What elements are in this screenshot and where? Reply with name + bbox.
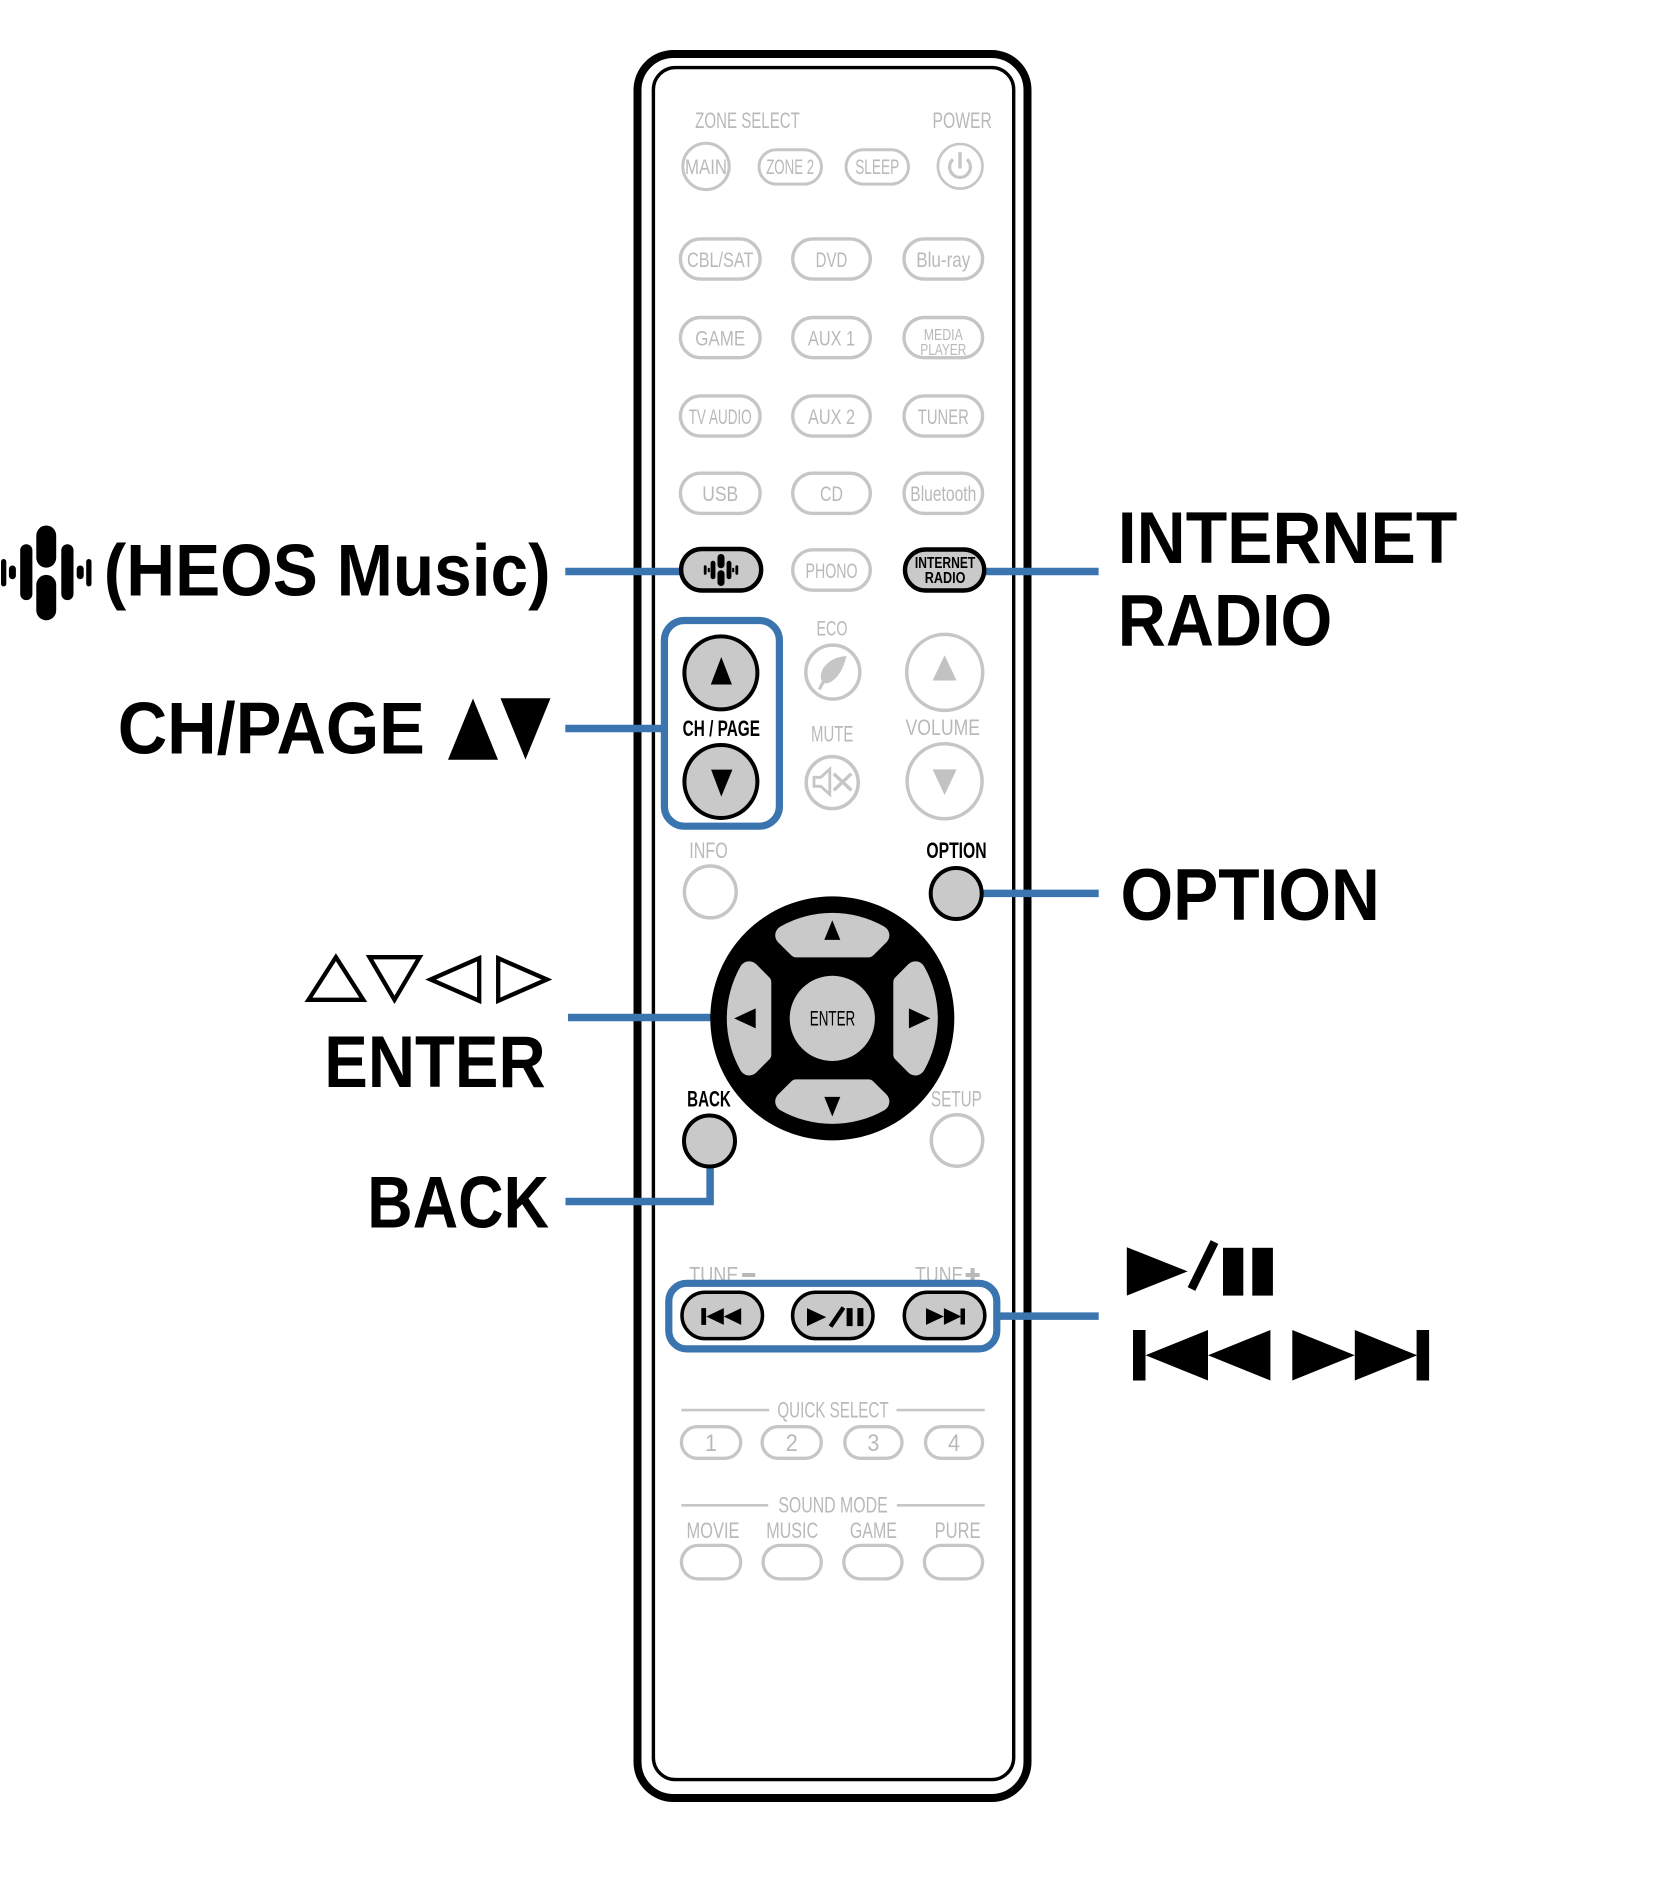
svg-text:GAME: GAME [695,328,745,351]
svg-text:MOVIE: MOVIE [686,1518,739,1543]
svg-text:RADIO: RADIO [1118,579,1333,662]
svg-text:4: 4 [948,1430,960,1457]
svg-text:3: 3 [867,1430,879,1457]
svg-text:MUTE: MUTE [811,721,853,746]
svg-text:PHONO: PHONO [806,560,858,583]
svg-text:MUSIC: MUSIC [766,1518,818,1543]
svg-text:AUX 1: AUX 1 [808,328,855,351]
svg-text:BACK: BACK [367,1160,549,1243]
svg-text:INTERNET: INTERNET [1118,496,1458,579]
svg-text:INFO: INFO [689,838,728,863]
svg-text:ZONE SELECT: ZONE SELECT [695,108,800,133]
svg-text:ZONE 2: ZONE 2 [766,156,814,179]
svg-text:CBL/SAT: CBL/SAT [687,249,753,272]
svg-text:CH/PAGE: CH/PAGE [118,686,425,769]
svg-text:OPTION: OPTION [1121,853,1380,936]
svg-text:CH / PAGE: CH / PAGE [683,716,760,741]
svg-text:POWER: POWER [933,108,992,133]
svg-text:SLEEP: SLEEP [855,156,899,179]
svg-text:ENTER: ENTER [810,1008,855,1031]
svg-text:1: 1 [705,1430,717,1457]
svg-text:BACK: BACK [687,1086,731,1111]
svg-text:MAIN: MAIN [685,156,727,179]
svg-text:TUNER: TUNER [918,406,969,429]
svg-text:Bluetooth: Bluetooth [910,483,976,506]
svg-text:ECO: ECO [817,618,848,641]
svg-text:ENTER: ENTER [324,1020,545,1103]
svg-text:OPTION: OPTION [926,838,986,863]
svg-text:PLAYER: PLAYER [920,342,966,359]
svg-text:USB: USB [702,483,738,506]
svg-text:TV AUDIO: TV AUDIO [689,406,752,429]
svg-text:PURE: PURE [935,1518,981,1543]
svg-text:Blu-ray: Blu-ray [916,249,970,272]
svg-text:GAME: GAME [850,1518,897,1543]
svg-text:SOUND MODE: SOUND MODE [778,1493,887,1518]
svg-text:(HEOS Music): (HEOS Music) [104,529,551,612]
svg-text:QUICK SELECT: QUICK SELECT [777,1398,888,1423]
svg-text:2: 2 [786,1430,798,1457]
svg-text:VOLUME: VOLUME [906,715,981,740]
svg-text:RADIO: RADIO [925,570,966,587]
svg-text:CD: CD [820,483,843,506]
svg-text:SETUP: SETUP [931,1086,982,1111]
svg-text:AUX 2: AUX 2 [808,406,855,429]
svg-text:DVD: DVD [816,249,848,272]
